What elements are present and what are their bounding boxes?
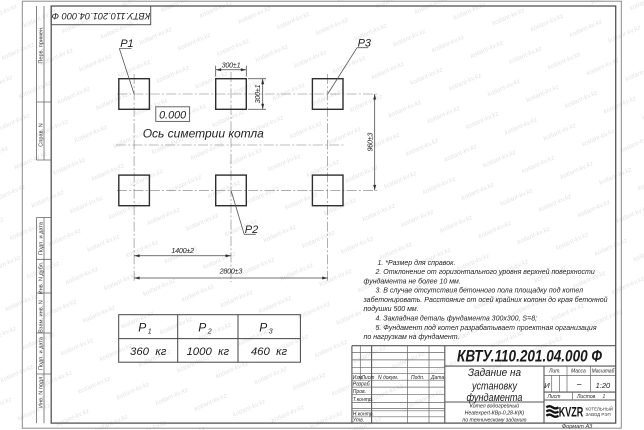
svg-text:1:20: 1:20 (596, 381, 611, 390)
svg-text:ЗАВОД РЭП: ЗАВОД РЭП (586, 412, 611, 417)
svg-text:300±1: 300±1 (222, 61, 241, 70)
svg-text:Инв. N подл.: Инв. N подл. (39, 375, 45, 408)
svg-text:Взам. инв. N: Взам. инв. N (39, 300, 45, 333)
svg-text:по техническому заданию: по техническому заданию (462, 418, 526, 424)
svg-text:Лист: Лист (547, 394, 561, 400)
svg-text:P2: P2 (245, 224, 258, 236)
svg-text:Утв.: Утв. (353, 418, 364, 424)
svg-text:Перв. примен.: Перв. примен. (39, 26, 45, 64)
svg-text:Лит.: Лит. (548, 368, 561, 374)
svg-text:Масштаб: Масштаб (592, 368, 615, 374)
svg-text:КОТЕЛЬНЫЙ: КОТЕЛЬНЫЙ (586, 407, 614, 412)
svg-text:Инв. N дубл.: Инв. N дубл. (39, 261, 45, 294)
svg-text:Листов: Листов (576, 394, 596, 400)
svg-text:И: И (544, 381, 550, 390)
svg-text:0.000: 0.000 (159, 109, 186, 121)
svg-text:Масса: Масса (571, 368, 586, 374)
svg-text:Котел водогрейный: Котел водогрейный (470, 403, 519, 410)
svg-text:Пров.: Пров. (353, 389, 366, 395)
svg-text:Подп. и дата: Подп. и дата (39, 336, 45, 370)
svg-text:5. Фундамент под котел разраба: 5. Фундамент под котел разрабатывает про… (376, 324, 597, 332)
svg-text:Разраб.: Разраб. (353, 382, 371, 388)
svg-text:KVZR: KVZR (559, 403, 584, 419)
svg-text:Т.контр.: Т.контр. (353, 397, 373, 403)
svg-text:960±3: 960±3 (365, 133, 374, 152)
svg-text:300±1: 300±1 (253, 84, 262, 103)
svg-text:КВТУ.110.201.04.000 Ф: КВТУ.110.201.04.000 Ф (51, 11, 150, 21)
svg-text:КВТУ.110.201.04.000 Ф: КВТУ.110.201.04.000 Ф (457, 346, 603, 365)
svg-text:подушки 500 мм.: подушки 500 мм. (364, 305, 419, 313)
svg-text:Heatexpert-КВр-0,28-К(К): Heatexpert-КВр-0,28-К(К) (465, 411, 525, 417)
svg-text:по нагрузкам на фундамент.: по нагрузкам на фундамент. (364, 333, 460, 341)
svg-text:Лист: Лист (361, 375, 375, 381)
svg-text:P1: P1 (120, 38, 133, 50)
svg-text:3. В случае отсутствия бетонно: 3. В случае отсутствия бетонного пола пл… (376, 287, 584, 295)
svg-text:1: 1 (603, 394, 606, 400)
svg-text:460 кг: 460 кг (251, 346, 288, 358)
svg-text:Ось симетрии котла: Ось симетрии котла (143, 127, 264, 141)
svg-text:Подп. и дата: Подп. и дата (39, 221, 45, 255)
svg-text:N докум.: N докум. (378, 375, 398, 381)
svg-text:Подп.: Подп. (411, 375, 424, 381)
svg-text:P3: P3 (358, 38, 372, 50)
svg-text:1400±2: 1400±2 (171, 246, 194, 255)
svg-text:–: – (576, 380, 582, 389)
svg-text:2800±3: 2800±3 (219, 266, 243, 275)
svg-text:фундамента: фундамента (467, 392, 523, 404)
svg-text:фундамента не более 10 мм.: фундамента не более 10 мм. (364, 277, 461, 285)
svg-text:4. Закладная деталь фундамента: 4. Закладная деталь фундамента 300х300, … (376, 315, 538, 323)
svg-text:Дата: Дата (430, 375, 444, 381)
svg-text:2. Отклонение от горизонтально: 2. Отклонение от горизонтального уровня … (375, 268, 595, 276)
svg-text:забетонировать. Расстояние от: забетонировать. Расстояние от осей крайн… (363, 296, 608, 304)
svg-text:Н.контр.: Н.контр. (353, 412, 374, 418)
svg-text:1. *Размер для справок.: 1. *Размер для справок. (378, 259, 456, 267)
svg-text:Справ. N: Справ. N (39, 123, 45, 146)
svg-text:360 кг: 360 кг (130, 346, 167, 358)
svg-text:1000 кг: 1000 кг (186, 346, 229, 358)
svg-text:Формат А3: Формат А3 (562, 424, 593, 430)
svg-text:установку: установку (471, 380, 518, 392)
svg-text:Задание на: Задание на (468, 367, 521, 379)
